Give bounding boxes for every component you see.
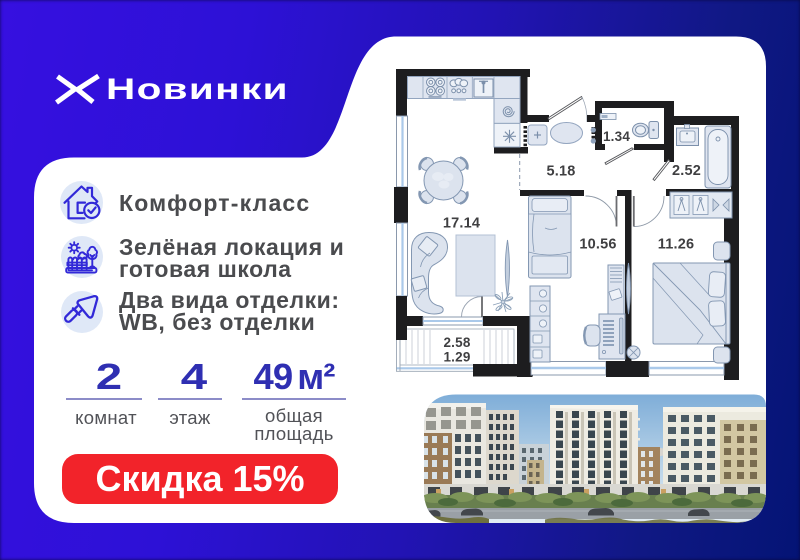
- svg-text:5.18: 5.18: [546, 164, 575, 180]
- svg-text:1.29: 1.29: [443, 350, 470, 365]
- svg-text:1.34: 1.34: [603, 129, 630, 144]
- svg-text:11.26: 11.26: [658, 236, 695, 252]
- svg-text:2.58: 2.58: [443, 335, 470, 350]
- svg-text:2.52: 2.52: [672, 163, 701, 179]
- svg-text:10.56: 10.56: [579, 236, 616, 252]
- svg-text:17.14: 17.14: [443, 216, 480, 232]
